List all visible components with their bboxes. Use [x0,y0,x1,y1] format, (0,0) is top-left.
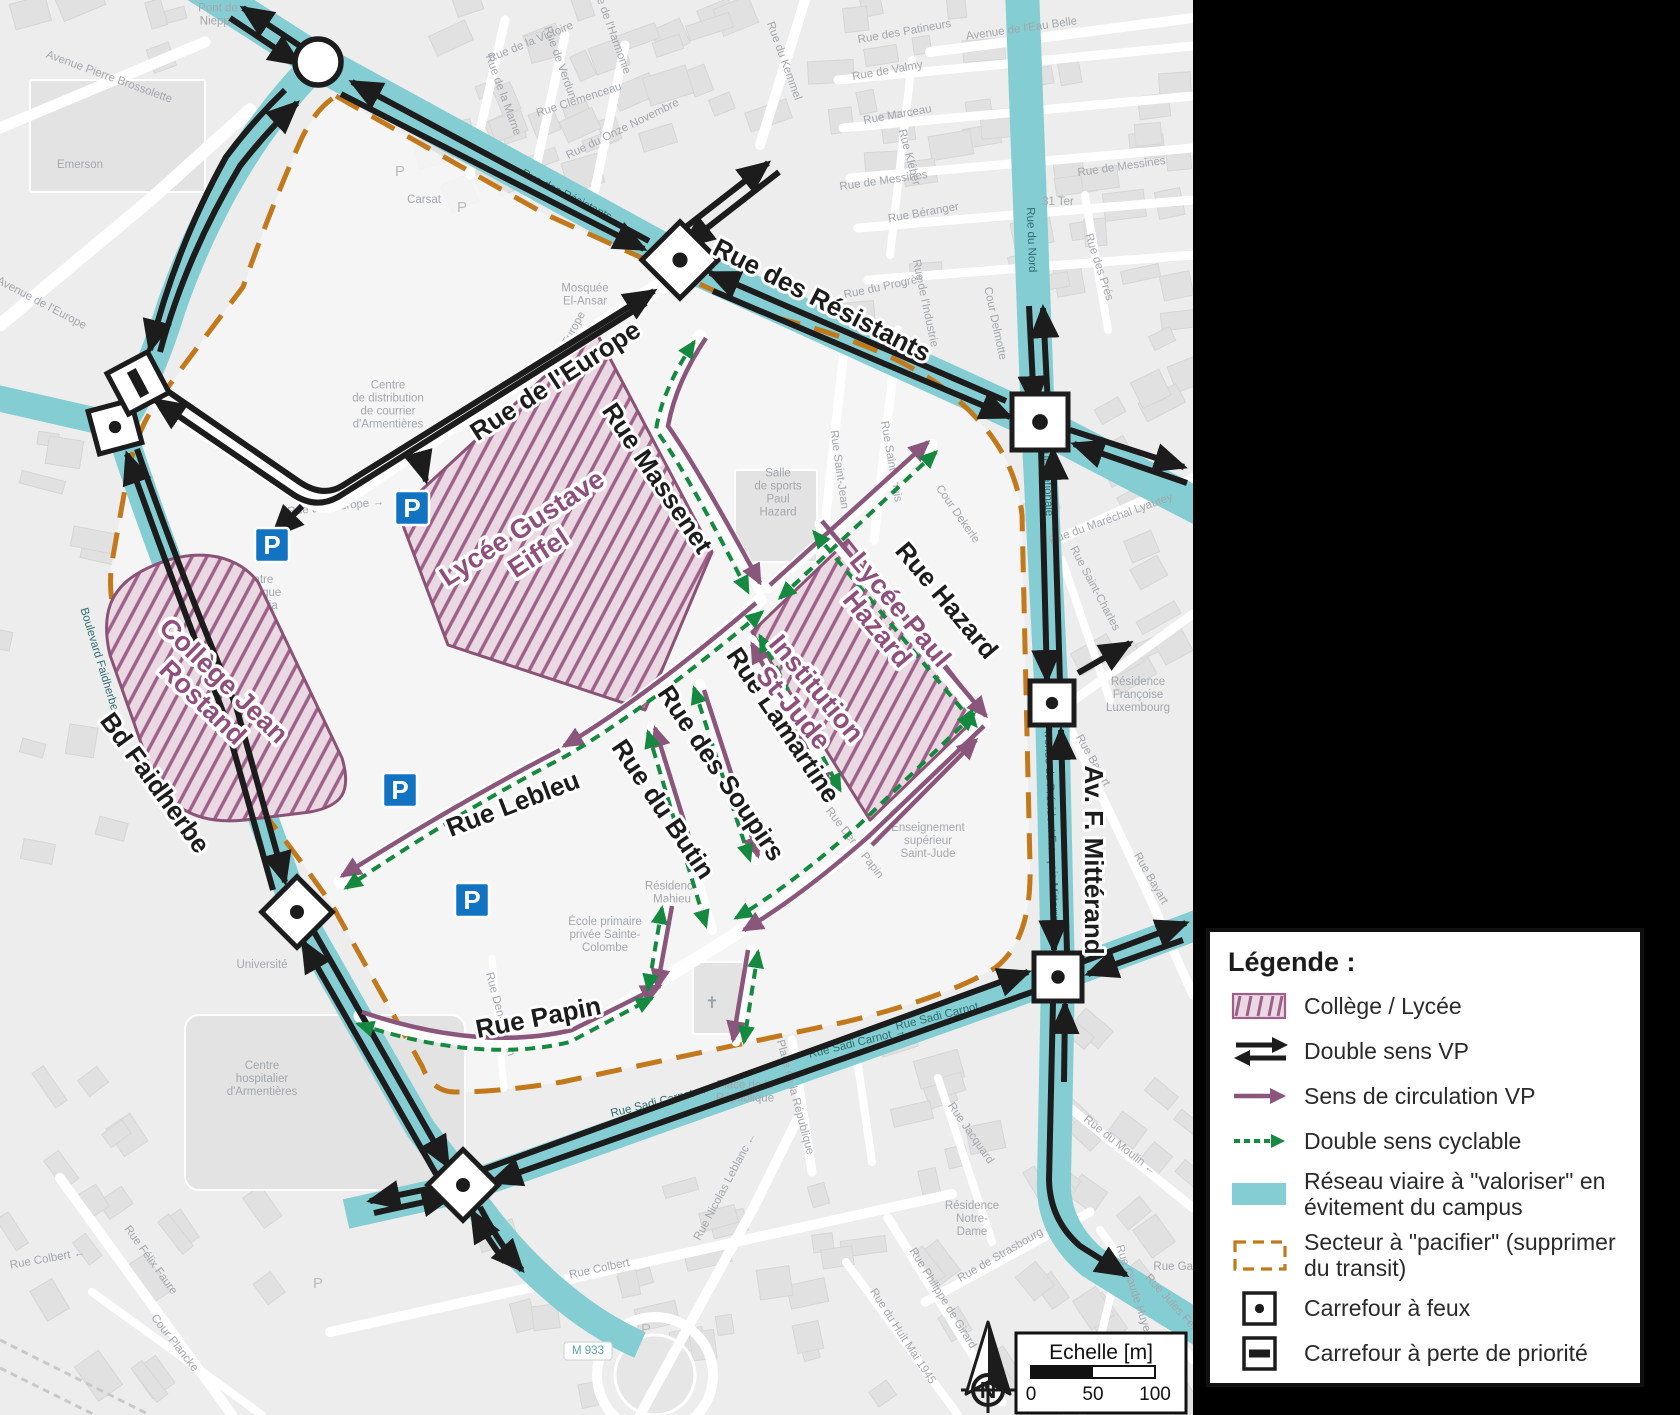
background-label: P [313,1275,323,1292]
legend-item-college-lycee: Collège / Lycée [1228,988,1622,1024]
legend-item-sens-circulation: Sens de circulation VP [1228,1078,1622,1114]
square-bar-icon [1228,1335,1292,1371]
background-label: MosquéeEl-Ansar [561,283,608,308]
scale-bar: Echelle [m]050100 [1016,1333,1186,1413]
background-label: RésidenceFrançoiseLuxembourg [1106,676,1170,714]
svg-text:50: 50 [1082,1384,1103,1405]
legend-title: Légende : [1228,947,1622,978]
background-label: Université [236,959,287,971]
carrefour-a-feux-marker [1030,681,1074,725]
carrefour-a-feux-marker [1034,953,1082,1001]
orange-dashed-rect-icon [1228,1237,1292,1273]
street-label: Av. F. Mittérand [1079,765,1109,954]
legend-item-carrefour-feux: Carrefour à feux [1228,1290,1622,1326]
svg-text:P: P [403,493,420,523]
background-label: P [457,199,467,216]
legend-item-secteur-pacifier: Secteur à "pacifier" (supprimer du trans… [1228,1229,1622,1281]
purple-arrow-icon [1228,1078,1292,1114]
background-label: Rue Gam [1153,1261,1193,1273]
green-dashed-arrow-icon [1228,1123,1292,1159]
legend-item-reseau-valoriser: Réseau viaire à "valoriser" en évitement… [1228,1168,1622,1220]
legend-item-label: Carrefour à feux [1304,1295,1470,1321]
legend-panel: Légende : Collège / Lycée Double sens VP [1206,928,1644,1387]
svg-text:100: 100 [1139,1384,1171,1405]
svg-text:0: 0 [1026,1384,1037,1405]
screenshot-root: Pont deNieppeEmersonAvenue Pierre Brosso… [0,0,1680,1415]
legend-item-label: Sens de circulation VP [1304,1083,1535,1109]
college-lycee-swatch-icon [1228,988,1292,1024]
background-label: Carsat [407,194,442,206]
background-label: 31 Ter [1042,196,1074,208]
background-label: Pont deNieppe [198,3,238,28]
svg-text:P: P [391,775,408,805]
parking-icon: P [255,528,289,562]
double-arrow-icon [1228,1033,1292,1069]
legend-item-double-sens-vp: Double sens VP [1228,1033,1622,1069]
background-label: Emerson [57,159,103,171]
legend-item-label: Double sens cyclable [1304,1128,1521,1154]
background-block [185,1015,465,1190]
carrefour-a-feux-marker [1012,394,1068,450]
background-label: P [641,1321,651,1338]
legend-item-label: Double sens VP [1304,1038,1469,1064]
legend-item-label: Réseau viaire à "valoriser" en évitement… [1304,1168,1622,1220]
legend-item-label: Collège / Lycée [1304,993,1462,1019]
legend-item-label: Carrefour à perte de priorité [1304,1340,1588,1366]
teal-band-icon [1228,1176,1292,1212]
svg-text:Echelle [m]: Echelle [m] [1049,1341,1153,1364]
roundabout-marker [295,39,341,85]
double-sens-vp-arrow [1064,1004,1065,1082]
legend-item-carrefour-perte-priorite: Carrefour à perte de priorité [1228,1335,1622,1371]
background-label: ✝ [705,995,718,1012]
background-label: Rue du Nord [1024,207,1038,273]
svg-text:P: P [263,530,280,560]
parking-icon: P [395,491,429,525]
parking-icon: P [383,773,417,807]
parking-icon: P [455,883,489,917]
map-svg: Pont deNieppeEmersonAvenue Pierre Brosso… [0,0,1193,1415]
square-dot-icon [1228,1290,1292,1326]
svg-text:N: N [980,1377,997,1403]
legend-item-double-sens-cyclable: Double sens cyclable [1228,1123,1622,1159]
svg-text:P: P [463,885,480,915]
background-label: M 933 [572,1345,604,1357]
legend-item-label: Secteur à "pacifier" (supprimer du trans… [1304,1229,1622,1281]
background-label: P [395,163,405,180]
